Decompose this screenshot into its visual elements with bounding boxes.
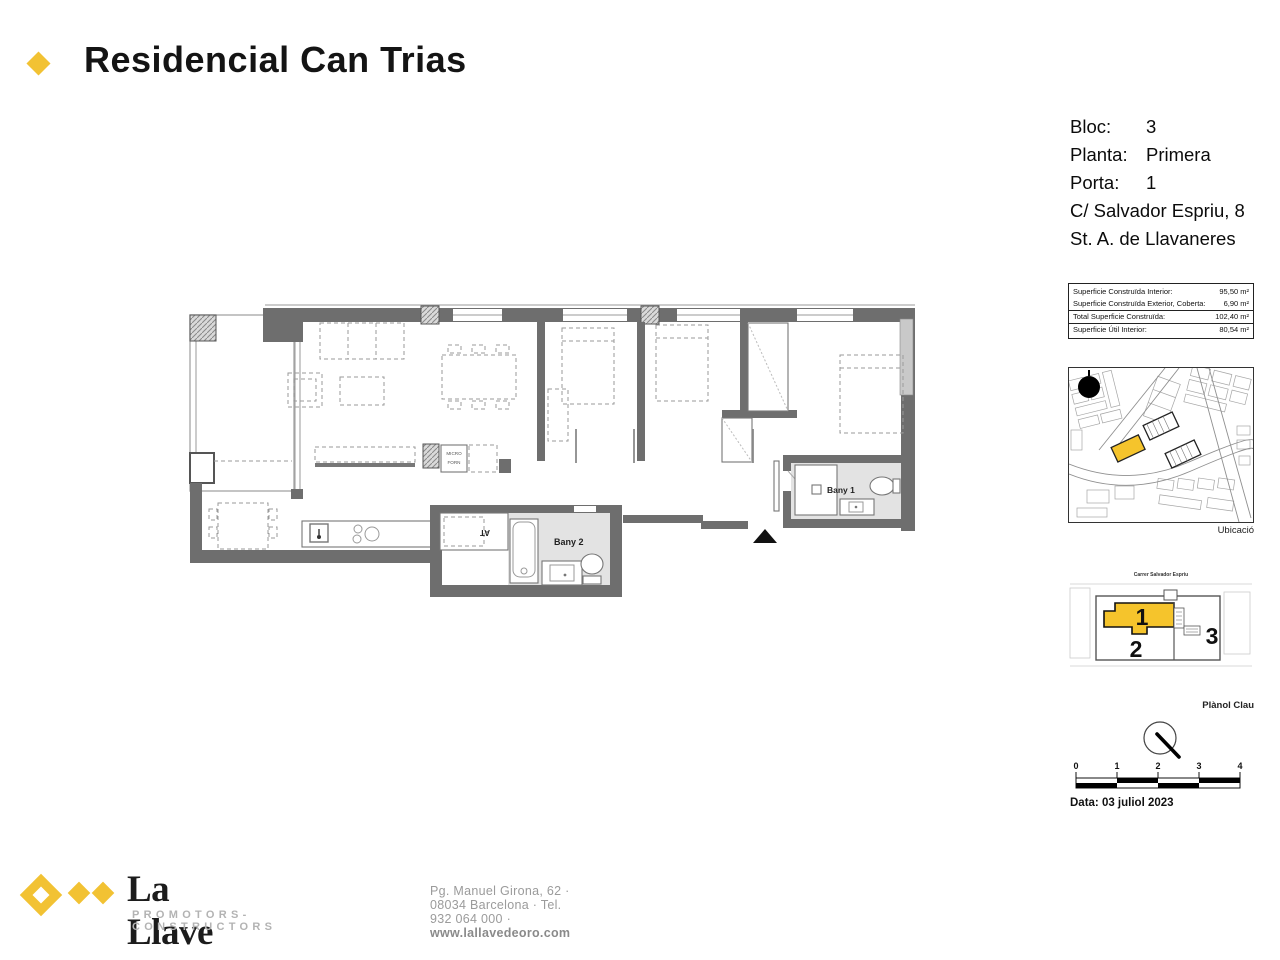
key-plan-graphic: Carrer Salvador Espriu 1 2 3 [1068, 562, 1254, 702]
brand-diamond-icon [26, 51, 50, 75]
map-caption: Ubicació [1068, 525, 1254, 536]
scale-tick-1: 1 [1114, 761, 1119, 771]
row-label: Superficie Útil Interior: [1073, 325, 1147, 335]
unit-info-block: Bloc:3 Planta:Primera Porta:1 C/ Salvado… [1070, 113, 1245, 253]
table-row: Superficie Construïda Interior:95,50 m² [1069, 286, 1253, 298]
row-value: 95,50 m² [1219, 287, 1249, 297]
toilet [870, 477, 894, 495]
brand-tagline: PROMOTORS-CONSTRUCTORS [132, 909, 276, 933]
row-value: 6,90 m² [1224, 299, 1249, 309]
info-value: 1 [1146, 172, 1156, 193]
logo-small-diamond-icon [92, 882, 115, 905]
table-row: Total Superficie Construïda:102,40 m² [1069, 311, 1253, 324]
at-closet [440, 513, 508, 550]
info-label: Porta: [1070, 169, 1146, 197]
info-row-porta: Porta:1 [1070, 169, 1245, 197]
footer-website: www.lallavedeoro.com [430, 926, 570, 940]
bathroom-1: Bany 1 [783, 455, 915, 528]
micro-label: MICRO [446, 451, 462, 456]
map-highlight-blocks [1111, 412, 1201, 468]
table-row: Superficie Útil Interior:80,54 m² [1069, 324, 1253, 336]
unit-3-label: 3 [1206, 623, 1219, 649]
plan-sheet: Residencial Can Trias Bloc:3 Planta:Prim… [0, 0, 1280, 960]
page-title: Residencial Can Trias [84, 39, 467, 81]
footer-address: Pg. Manuel Girona, 62 · 08034 Barcelona … [430, 884, 570, 940]
key-plan-caption: Plànol Clau [1068, 700, 1254, 711]
forn-label: FORN [447, 460, 460, 465]
bany1-label: Bany 1 [827, 485, 855, 495]
row-label: Total Superficie Construïda: [1073, 312, 1165, 322]
location-map-graphic [1069, 368, 1253, 522]
key-plan: Carrer Salvador Espriu 1 2 3 [1068, 562, 1254, 707]
address-line-1: C/ Salvador Espriu, 8 [1070, 197, 1245, 225]
row-label: Superficie Construïda Interior: [1073, 287, 1173, 297]
bathroom-2: AT Bany 2 [430, 505, 622, 597]
living-furniture [288, 323, 516, 467]
scale-tick-3: 3 [1196, 761, 1201, 771]
scale-tick-2: 2 [1155, 761, 1160, 771]
wardrobe [722, 323, 788, 462]
address-line-2: St. A. de Llavaneres [1070, 225, 1245, 253]
scale-tick-4: 4 [1237, 761, 1242, 771]
toilet [581, 554, 603, 574]
info-value: 3 [1146, 116, 1156, 137]
street-label: Carrer Salvador Espriu [1134, 572, 1188, 578]
table-row: Superficie Construïda Exterior, Coberta:… [1069, 298, 1253, 311]
unit-2-label: 2 [1130, 636, 1143, 662]
terrace [190, 315, 294, 557]
date-label: Data: 03 juliol 2023 [1070, 797, 1174, 809]
info-label: Bloc: [1070, 113, 1146, 141]
unit-1-label: 1 [1136, 604, 1149, 630]
dining-table [218, 503, 268, 549]
floor-plan: MICRO FORN [182, 293, 922, 608]
map-north-dot [1078, 376, 1100, 398]
address-text: Pg. Manuel Girona, 62 · 08034 Barcelona … [430, 884, 570, 926]
bany2-label: Bany 2 [554, 537, 584, 547]
surface-table: Superficie Construïda Interior:95,50 m² … [1068, 283, 1254, 339]
row-label: Superficie Construïda Exterior, Coberta: [1073, 299, 1206, 309]
row-value: 80,54 m² [1219, 325, 1249, 335]
logo-small-diamond-icon [68, 882, 91, 905]
at-label: AT [480, 528, 490, 537]
entrance-arrow-icon [753, 529, 777, 543]
info-value: Primera [1146, 144, 1211, 165]
info-label: Planta: [1070, 141, 1146, 169]
map-subject-building [1111, 435, 1145, 462]
row-value: 102,40 m² [1215, 312, 1249, 322]
location-map [1068, 367, 1254, 523]
window [900, 319, 913, 395]
info-row-bloc: Bloc:3 [1070, 113, 1245, 141]
door-leaf [774, 461, 779, 511]
logo-diamond-icon [20, 874, 62, 916]
scale-bar: 0 1 2 3 4 [1070, 760, 1246, 799]
scale-tick-0: 0 [1073, 761, 1078, 771]
info-row-planta: Planta:Primera [1070, 141, 1245, 169]
